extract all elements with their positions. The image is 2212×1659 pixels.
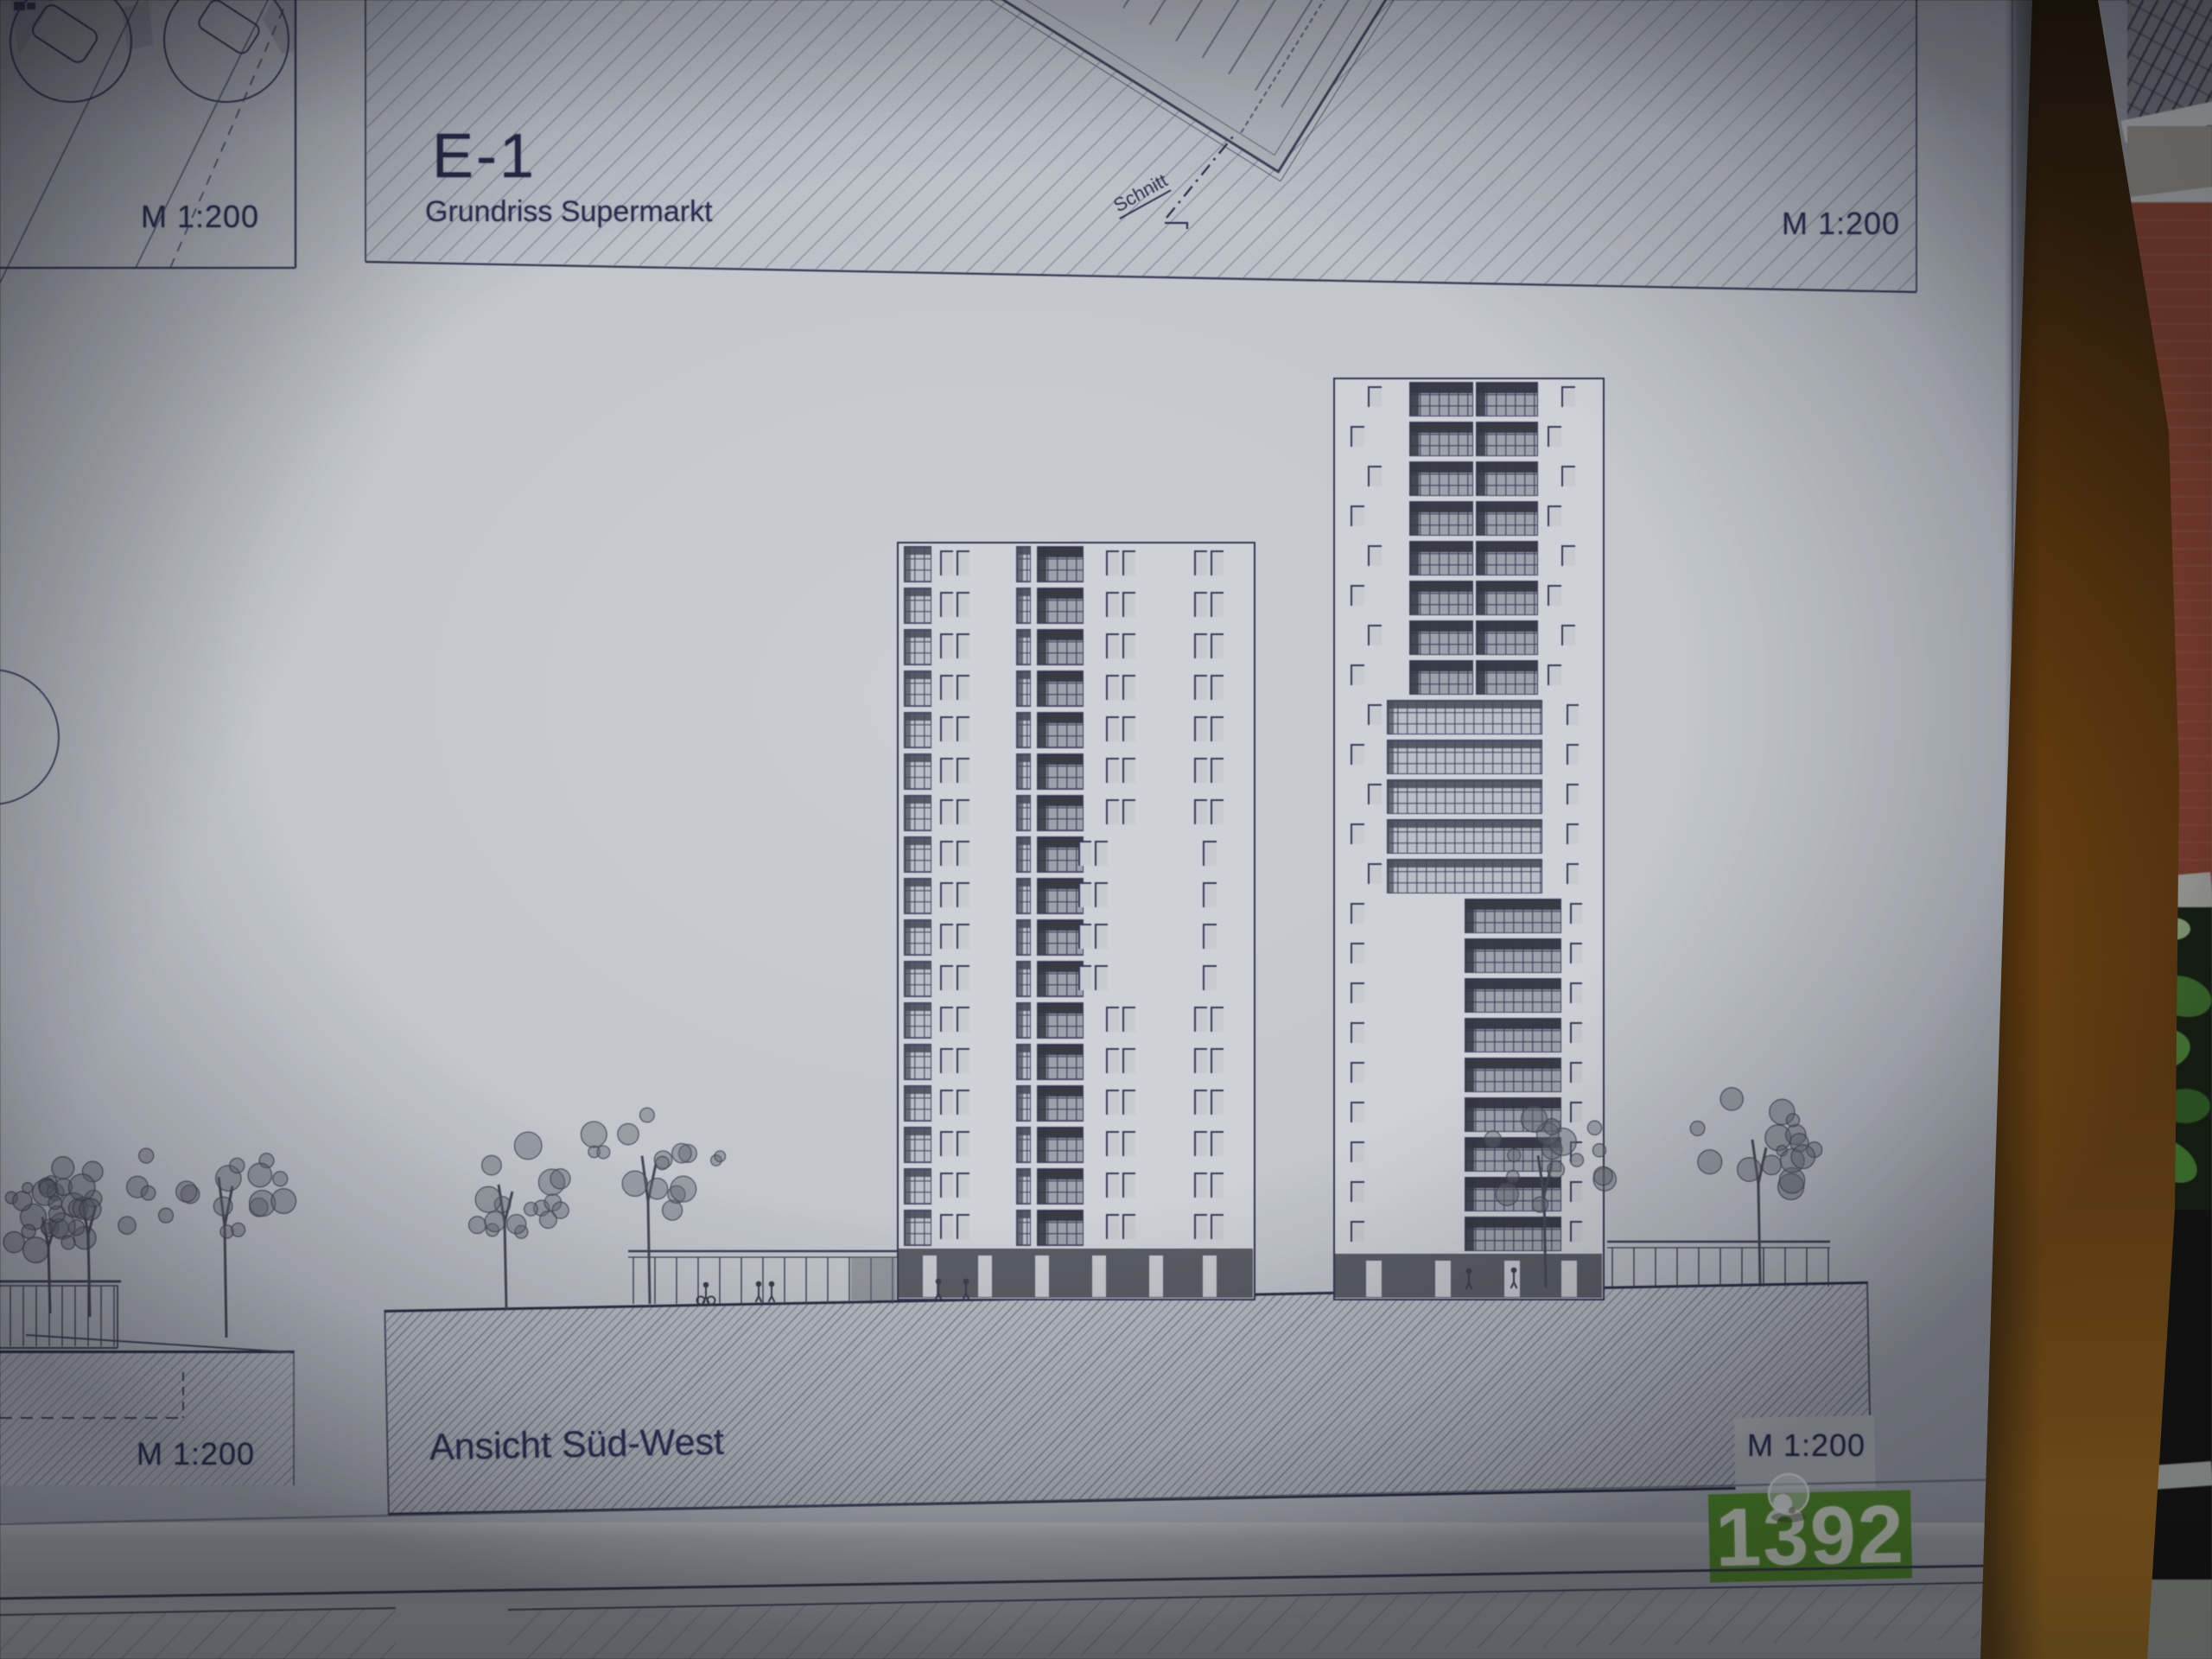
window-view — [0, 0, 2212, 1659]
photo-of-architectural-board: M 1:200 E-1 Grundriss Supermarkt M 1:200… — [0, 0, 2212, 1659]
